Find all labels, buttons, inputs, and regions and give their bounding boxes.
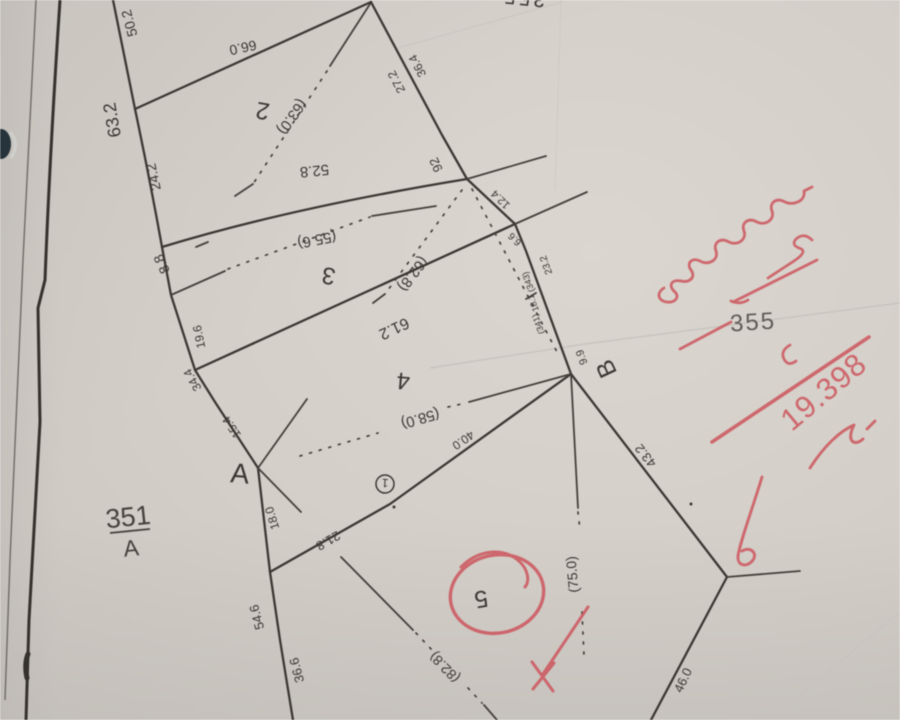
svg-text:A: A: [229, 457, 251, 490]
svg-text:4: 4: [396, 366, 412, 394]
svg-text:355: 355: [729, 307, 777, 337]
svg-text:(75.0): (75.0): [562, 556, 581, 594]
svg-text:52.8: 52.8: [299, 160, 330, 180]
